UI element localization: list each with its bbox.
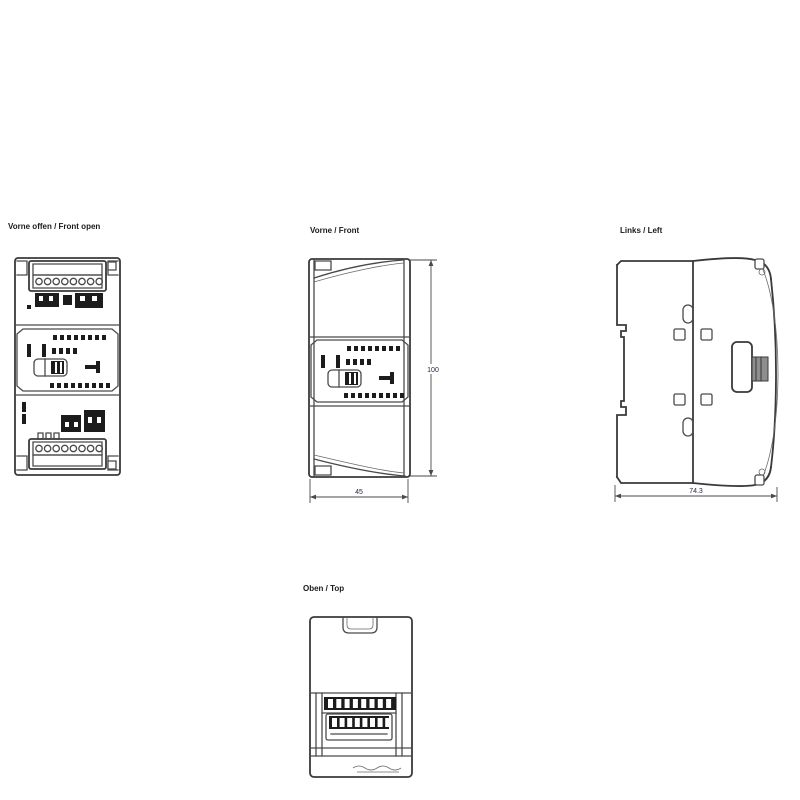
led-row-top — [53, 335, 106, 340]
bottom-connector-labels — [22, 402, 105, 439]
terminal-row-upper — [322, 697, 396, 713]
top-terminal-block — [29, 261, 106, 291]
led-row-bottom — [344, 393, 404, 398]
led-row-top — [347, 346, 400, 351]
front-open-view-label: Vorne offen / Front open — [8, 222, 100, 231]
depth-dimension: 74.3 — [615, 485, 777, 502]
terminal-row-lower — [326, 714, 392, 740]
mode-switch — [328, 370, 361, 387]
width-dimension-value: 45 — [355, 489, 363, 496]
height-dimension-value: 100 — [427, 367, 439, 374]
top-connector-labels — [27, 293, 103, 309]
cover-hinge-clips — [683, 305, 693, 436]
front-edge-detail — [310, 748, 412, 772]
bottom-cover — [314, 455, 405, 476]
front-view-drawing: 100 45 — [300, 245, 465, 510]
depth-dimension-value: 74.3 — [689, 488, 703, 495]
front-open-view-drawing — [5, 245, 135, 485]
front-view-label: Vorne / Front — [310, 226, 359, 235]
height-dimension: 100 — [410, 260, 440, 476]
dimension-drawing-page: Vorne offen / Front open Vorne / Front L… — [0, 0, 800, 800]
led-row-bottom — [50, 383, 110, 388]
middle-status-band — [15, 325, 120, 395]
din-clip-tab — [343, 617, 377, 633]
left-view-label: Links / Left — [620, 226, 662, 235]
top-view-drawing — [295, 600, 425, 785]
top-cover — [314, 260, 404, 282]
bottom-terminal-block — [29, 439, 106, 469]
width-dimension: 45 — [310, 479, 408, 503]
top-view-label: Oben / Top — [303, 584, 344, 593]
middle-status-band — [309, 337, 410, 406]
left-view-drawing: 74.3 — [605, 245, 795, 505]
bus-connector — [732, 342, 768, 392]
mode-switch — [34, 359, 67, 376]
